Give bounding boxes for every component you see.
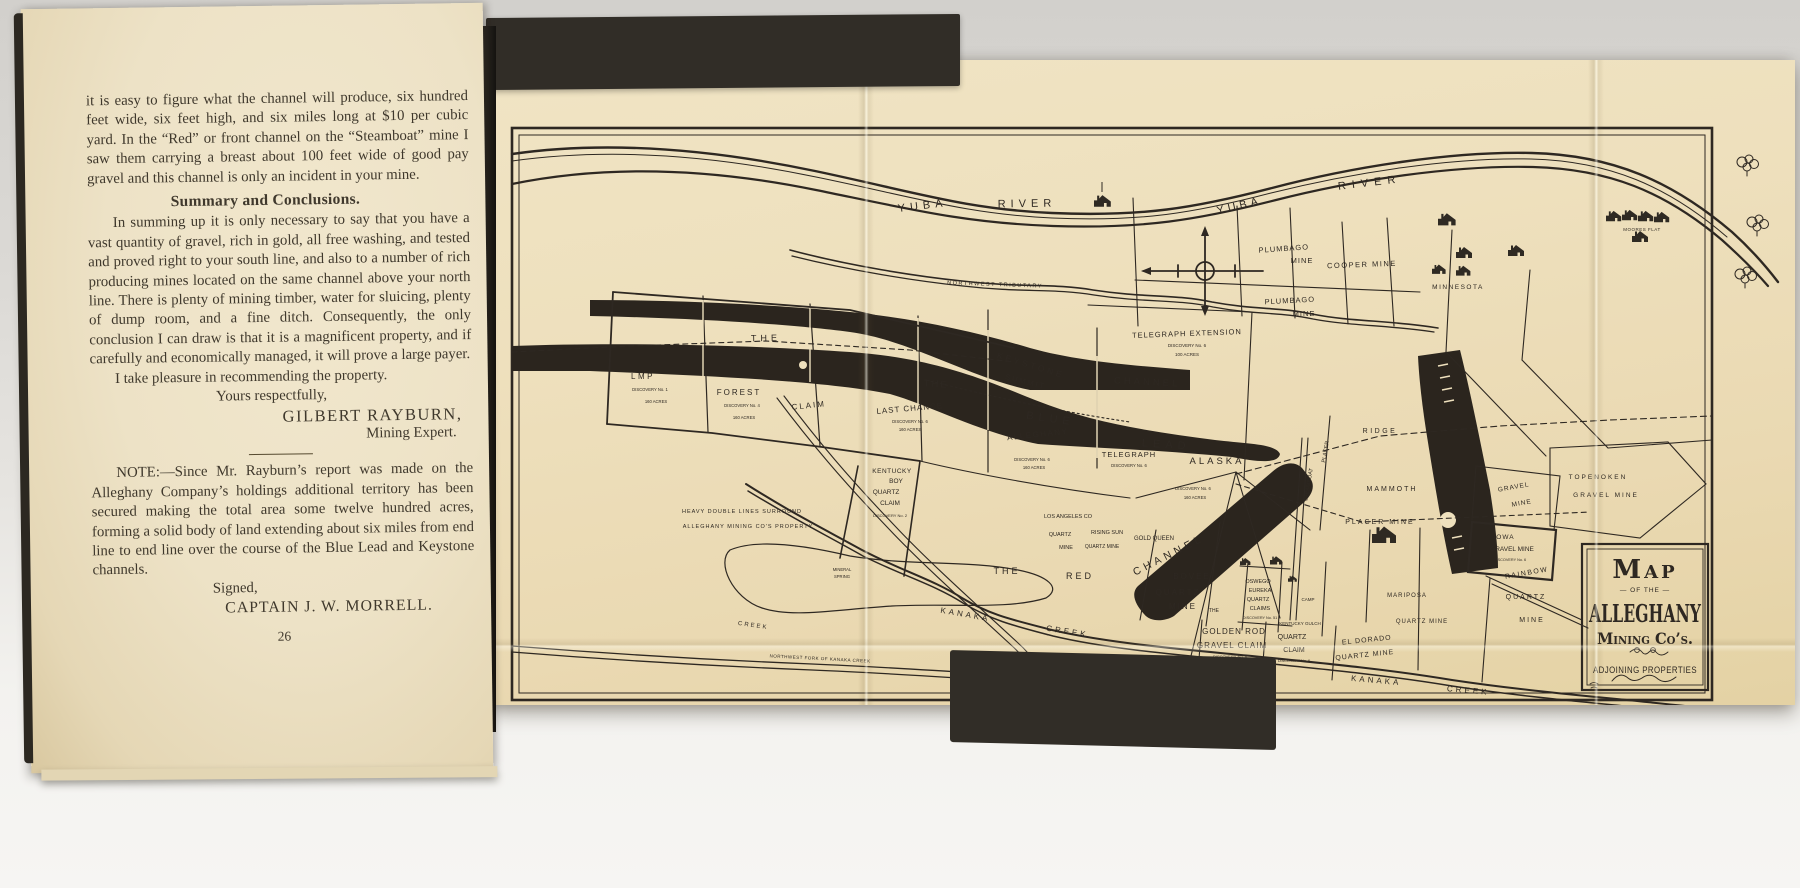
map-svg: Map — OF THE — ALLEGHANY Mining Co’s. AD… <box>490 60 1795 705</box>
map-label-creek-2: CREEK <box>1447 684 1490 697</box>
map-label-alaska: ALASKA <box>1190 456 1245 467</box>
house-icon <box>1632 231 1648 242</box>
map-label-golden-rod-1: GOLDEN ROD <box>1202 627 1266 636</box>
divider-rule <box>249 454 313 456</box>
map-label-quartz-claim-disc: DISCOVERY No. 6 <box>1278 659 1310 663</box>
map-label-claim: CLAIM <box>791 399 826 412</box>
left-page: it is easy to figure what the channel wi… <box>21 3 494 773</box>
yuba-river-lines <box>512 148 1778 286</box>
map-label-the-red-2: RED <box>1066 571 1094 581</box>
title-signature-squiggle <box>1612 675 1676 681</box>
flat-outline <box>725 544 1053 613</box>
map-title-line5: ADJOINING PROPERTIES <box>1593 665 1697 675</box>
map-label-kentucky-boy-4: CLAIM <box>880 500 900 507</box>
map-label-mine-se: MINE <box>1519 617 1545 624</box>
map-label-telegraph-extension: TELEGRAPH EXTENSION <box>1132 327 1242 340</box>
map-label-minnesota: MINNESOTA <box>1432 284 1484 291</box>
map-title-line3: ALLEGHANY <box>1588 599 1701 628</box>
map-label-creek-0: CREEK <box>738 621 769 631</box>
map-label-the-dashed: THE <box>751 333 781 344</box>
map-label-alleghany-acres: 160 ACRES <box>1023 465 1046 470</box>
map-label-topenoken-2: GRAVEL MINE <box>1573 492 1639 499</box>
map-label-gravel-mine-2: MINE <box>1511 498 1532 508</box>
signature-title: Mining Expert. <box>91 423 473 448</box>
map-label-quartz-claim-2: CLAIM <box>1283 647 1305 654</box>
map-label-alaska-disc: DISCOVERY No. 6 <box>1175 486 1211 491</box>
map-label-mineral-spring-2: SPRING <box>834 574 850 579</box>
map-label-bovee: BOVEE <box>1173 572 1211 581</box>
map-label-bovee-3: MINE <box>1169 602 1197 611</box>
house-icon <box>1638 211 1653 221</box>
house-icon <box>1438 213 1456 225</box>
photo-backdrop: Map — OF THE — ALLEGHANY Mining Co’s. AD… <box>0 0 1800 888</box>
section-heading: Summary and Conclusions. <box>87 188 443 212</box>
map-label-plumbago-mine-1a: PLUMBAGO <box>1258 242 1309 255</box>
title-ornament-icon <box>1630 648 1668 655</box>
signed-name: CAPTAIN J. W. MORRELL. <box>93 595 475 620</box>
map-label-forest: FOREST <box>717 388 761 397</box>
map-label-alleghany-disc: DISCOVERY No. 6 <box>1014 457 1050 462</box>
map-label-plumbago-mine-2a: PLUMBAGO <box>1264 295 1315 307</box>
map-label-oswego-1: OSWEGO <box>1245 579 1271 585</box>
map-label-moores-flat: MOORES FLAT <box>1623 227 1660 232</box>
house-icon <box>1654 212 1669 222</box>
map-label-alaska-acres: 160 ACRES <box>1184 495 1207 500</box>
page-number: 26 <box>93 624 475 649</box>
house-icon <box>1240 558 1250 565</box>
map-label-oswego-3: QUARTZ <box>1247 597 1270 603</box>
map-label-legend-line-1: HEAVY DOUBLE LINES SURROUND <box>682 509 802 515</box>
map-label-oswego-2: EUREKA <box>1249 588 1272 594</box>
map-label-placer-mine: PLACER MINE <box>1345 519 1414 526</box>
map-label-last-chance-acres: 160 ACRES <box>899 427 922 432</box>
map-label-kanaka-2: KANAKA <box>1351 674 1402 687</box>
map-label-los-angeles-2: QUARTZ <box>1049 532 1072 538</box>
map-label-los-angeles-3: MINE <box>1059 545 1073 551</box>
map-title-line2: — OF THE — <box>1620 587 1670 594</box>
map-label-the-red-1: THE <box>994 566 1021 576</box>
map-label-kentucky-boy-3: QUARTZ <box>873 489 900 496</box>
map-label-el-dorado-1: EL DORADO <box>1342 634 1392 646</box>
compass-rose-icon <box>1141 226 1263 316</box>
map-title-line4: Mining Co’s. <box>1597 629 1693 648</box>
map-label-rising-sun: RISING SUN <box>1091 530 1123 536</box>
map-label-lmp: LMP <box>631 372 655 381</box>
map-label-rising-sun-2: QUARTZ MINE <box>1085 544 1120 550</box>
paragraph-note: NOTE:—Since Mr. Rayburn’s report was mad… <box>91 459 475 581</box>
house-icon <box>1456 266 1470 276</box>
fold-out-map-sheet: Map — OF THE — ALLEGHANY Mining Co’s. AD… <box>490 60 1795 705</box>
map-label-topenoken-1: TOPENOKEN <box>1569 474 1628 481</box>
map-label-the-blue: THE <box>923 378 949 391</box>
map-label-mammoth: MAMMOTH <box>1367 486 1418 493</box>
map-label-oswego-disc: DISCOVERY No. 51 <box>1243 616 1277 620</box>
map-label-kentucky-boy-1: KENTUCKY <box>872 468 912 475</box>
map-label-plumbago-mine-1b: MINE <box>1291 256 1314 265</box>
map-label-iowa-2: GRAVEL MINE <box>1490 546 1534 553</box>
map-label-kentucky-boy-2: BOY <box>889 478 903 485</box>
map-label-the-small: THE <box>1209 608 1220 614</box>
map-label-yuba-river-1b: RIVER <box>998 197 1057 210</box>
map-label-camp: CAMP <box>1301 597 1314 602</box>
map-label-iowa-1: IOWA <box>1493 534 1514 541</box>
map-label-quartz-mine-sw: QUARTZ MINE <box>1396 619 1448 625</box>
map-label-forest-acres: 160 ACRES <box>733 415 756 420</box>
house-icon <box>1432 265 1446 274</box>
map-label-gold-queen: GOLD QUEEN <box>1134 536 1174 542</box>
house-icon <box>1508 245 1524 256</box>
map-label-los-angeles: LOS ANGELES CO <box>1044 514 1093 520</box>
map-label-yuba-river-2a: YUBA <box>1216 195 1263 217</box>
house-icon <box>1622 210 1637 220</box>
paragraph-channel-continuation: it is easy to figure what the channel wi… <box>86 87 469 189</box>
map-label-last-chance: LAST CHANCE <box>876 401 943 416</box>
map-label-kentucky-boy-disc: DISCOVERY No. 2 <box>873 513 908 518</box>
paragraph-summary: In summing up it is only necessary to sa… <box>88 209 472 370</box>
map-label-telegraph-extension-acres: 100 ACRES <box>1175 352 1199 357</box>
map-label-golden-rod-2: GRAVEL CLAIM <box>1197 641 1267 650</box>
book-cover-top-edge <box>486 14 960 90</box>
map-label-plumbago-mine-2b: MINE <box>1293 309 1316 318</box>
map-label-lmp-acres: 160 ACRES <box>645 399 668 404</box>
house-icon <box>1456 247 1472 258</box>
map-title-block: Map — OF THE — ALLEGHANY Mining Co’s. AD… <box>1582 544 1708 690</box>
map-label-iowa-disc: DISCOVERY No. 6 <box>1494 558 1526 562</box>
map-label-quartz-claim-1: QUARTZ <box>1278 634 1307 641</box>
map-label-el-dorado-2: QUARTZ MINE <box>1335 649 1395 662</box>
map-label-placer-vertical: PLACER <box>1321 440 1331 463</box>
map-title-line1: Map <box>1612 555 1677 585</box>
map-label-mariposa: MARIPOSA <box>1387 593 1427 599</box>
map-label-cooper-mine: COOPER MINE <box>1327 259 1397 270</box>
map-label-gravel-mine-1: GRAVEL <box>1497 481 1530 493</box>
map-label-nw-fork: NORTHWEST FORK OF KANAKA CREEK <box>769 653 870 663</box>
tree-icon <box>1737 155 1759 176</box>
hotel-icon <box>1372 527 1396 544</box>
map-label-creek-1: CREEK <box>1046 624 1089 640</box>
map-label-kentucky-gulch: KENTUCKY GULCH <box>1279 621 1320 626</box>
mill-icon <box>1094 195 1111 207</box>
house-icon <box>1606 211 1621 221</box>
map-label-forest-disc: DISCOVERY No. 4 <box>724 403 760 408</box>
left-page-text-block: it is easy to figure what the channel wi… <box>86 87 476 648</box>
tree-icon <box>1747 215 1769 236</box>
map-label-telegraph: TELEGRAPH <box>1102 450 1156 459</box>
map-label-lmp-disc: DISCOVERY No. 1 <box>632 387 668 392</box>
right-channel-band <box>1418 350 1498 574</box>
house-icon <box>1270 556 1282 564</box>
map-label-legend-line-2: ALLEGHANY MINING CO'S PROPERTY <box>683 524 813 530</box>
map-label-quartz-se: QUARTZ <box>1506 594 1547 601</box>
map-label-oswego-4: CLAIMS <box>1250 606 1271 612</box>
map-label-telegraph-extension-disc: DISCOVERY No. 6 <box>1168 343 1207 348</box>
map-label-bovee-2: QUARTZ <box>1156 588 1201 597</box>
house-icon <box>1288 576 1297 582</box>
map-label-last-chance-disc: DISCOVERY No. 6 <box>892 419 928 424</box>
map-label-mineral-spring-1: MINERAL <box>833 567 852 572</box>
map-label-ridge: RIDGE <box>1363 428 1398 435</box>
book-cover-bottom-edge <box>950 650 1276 750</box>
map-label-telegraph-disc: DISCOVERY No. 6 <box>1111 463 1147 468</box>
